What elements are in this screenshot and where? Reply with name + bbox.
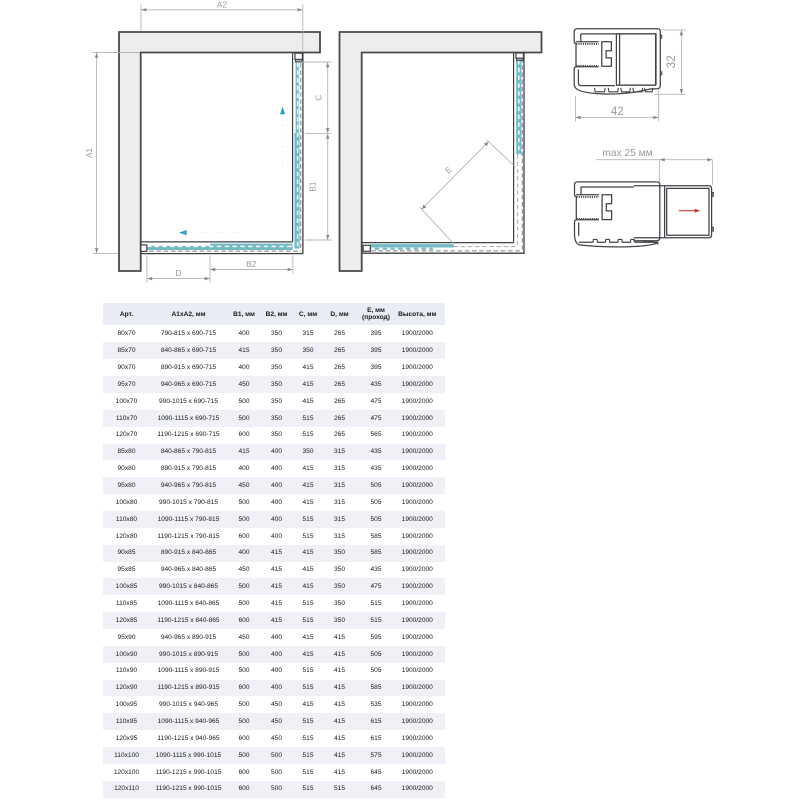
svg-text:42: 42: [611, 106, 624, 118]
svg-text:B1: B1: [308, 181, 317, 191]
svg-text:32: 32: [666, 55, 678, 68]
svg-text:B2: B2: [246, 260, 256, 269]
svg-text:A1: A1: [85, 148, 94, 158]
svg-text:D: D: [176, 269, 182, 278]
svg-text:max 25 мм: max 25 мм: [602, 148, 652, 159]
svg-text:E: E: [444, 165, 455, 176]
svg-text:A2: A2: [217, 1, 227, 10]
svg-text:C: C: [315, 95, 324, 101]
